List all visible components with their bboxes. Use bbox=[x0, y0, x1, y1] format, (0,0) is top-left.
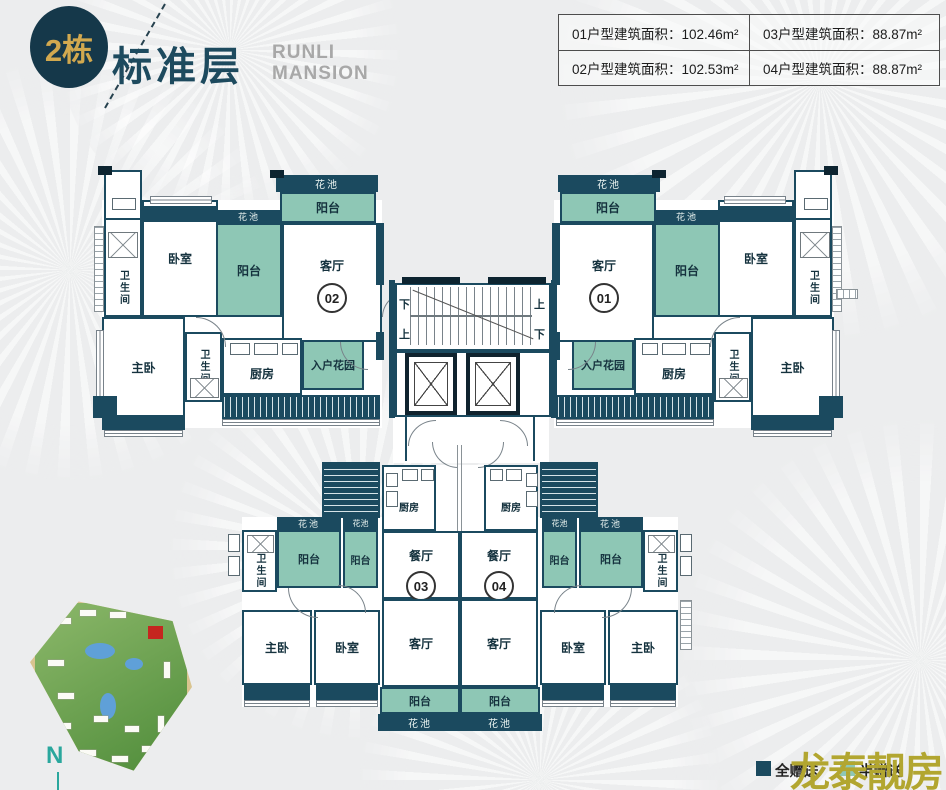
stair-label-up: 上 bbox=[534, 296, 545, 312]
bar-label: 花池 bbox=[488, 715, 512, 730]
site-building bbox=[125, 726, 139, 732]
u04-balcony-a: 阳台 bbox=[579, 530, 643, 588]
u04-kitchen: 厨房 bbox=[484, 465, 538, 531]
room-label: 阳台 bbox=[298, 551, 320, 567]
u04-balcony-bottom: 阳台 bbox=[460, 687, 540, 714]
wall-chunk bbox=[144, 206, 216, 222]
elevator-b bbox=[466, 353, 520, 415]
room-label: 卧室 bbox=[335, 639, 359, 656]
site-building bbox=[55, 723, 71, 729]
bar-label: 花池 bbox=[315, 176, 339, 191]
room-label: 卫生间 bbox=[252, 553, 267, 589]
bar-label: 花池 bbox=[408, 715, 432, 730]
u03-bathroom: 卫生间 bbox=[242, 530, 277, 592]
site-building bbox=[110, 612, 126, 618]
fixture-box bbox=[506, 469, 522, 481]
site-building bbox=[58, 693, 74, 699]
ledge bbox=[836, 289, 858, 299]
fixture-box bbox=[112, 198, 136, 210]
u04-dining: 餐厅 04 bbox=[460, 531, 538, 599]
u02-balcony-mid: 阳台 bbox=[216, 223, 282, 317]
u03-bedroom: 卧室 bbox=[314, 610, 380, 685]
wall-chunk bbox=[819, 396, 843, 418]
wall-chunk bbox=[376, 223, 384, 285]
room-label: 主卧 bbox=[631, 639, 655, 656]
window bbox=[832, 330, 840, 402]
wall-chunk bbox=[389, 280, 395, 418]
u01-living: 客厅 01 bbox=[554, 223, 654, 342]
u02-bathroom-1: 卫生间 bbox=[104, 218, 142, 317]
u04-duct-shaft bbox=[540, 462, 598, 518]
watermark: 龙泰靓房 bbox=[790, 740, 942, 790]
wall-chunk bbox=[376, 332, 384, 360]
ac-platform bbox=[680, 600, 692, 650]
area-cell-04: 04户型建筑面积：88.87m² bbox=[749, 50, 939, 85]
u03-master-bedroom: 主卧 bbox=[242, 610, 312, 685]
unit-number-label: 03 bbox=[414, 579, 428, 594]
hatch-box bbox=[190, 378, 219, 398]
u01-closet bbox=[794, 170, 832, 220]
u03-duct-shaft bbox=[322, 462, 380, 518]
room-label: 阳台 bbox=[351, 552, 371, 567]
u03-flowerbed-a: 花池 bbox=[277, 517, 341, 530]
room-label: 主卧 bbox=[265, 639, 289, 656]
room-label: 阳台 bbox=[237, 262, 261, 279]
floorplan-page: 2栋 标准层 RUNLI MANSION 01户型建筑面积：102.46m² 0… bbox=[0, 0, 946, 790]
bar-label: 花池 bbox=[600, 517, 622, 530]
fixture-box bbox=[386, 473, 398, 487]
unit-number-label: 01 bbox=[597, 291, 611, 306]
room-label: 卫生间 bbox=[116, 270, 131, 306]
hatch-box bbox=[108, 232, 138, 258]
window bbox=[556, 419, 714, 426]
wall-chunk bbox=[316, 684, 378, 700]
fixture-box bbox=[804, 198, 828, 210]
site-building bbox=[142, 746, 156, 752]
room-label: 阳台 bbox=[600, 551, 622, 567]
fan-pattern bbox=[680, 420, 946, 790]
fixture-box bbox=[490, 469, 503, 481]
area-cell-03: 03户型建筑面积：88.87m² bbox=[749, 15, 939, 50]
compass-n-label: N bbox=[46, 742, 63, 770]
window bbox=[316, 700, 378, 707]
fixture-box bbox=[282, 343, 298, 355]
site-building bbox=[55, 618, 71, 624]
site-building bbox=[80, 750, 96, 756]
u04-living: 客厅 bbox=[460, 599, 538, 687]
building-badge-label: 2栋 bbox=[45, 25, 93, 70]
u01-flowerbed-top: 花池 bbox=[558, 175, 660, 192]
fixture-box bbox=[526, 491, 538, 507]
u01-kitchen: 厨房 bbox=[634, 338, 714, 395]
wall-chunk bbox=[551, 280, 557, 418]
room-label: 阳台 bbox=[316, 199, 340, 216]
site-map-pond bbox=[85, 643, 115, 659]
u03-flowerbed-b: 花池 bbox=[343, 517, 378, 530]
room-label: 客厅 bbox=[409, 635, 433, 652]
unit-number-02: 02 bbox=[317, 283, 347, 313]
area-cell-02: 02户型建筑面积：102.53m² bbox=[559, 50, 749, 85]
u03-balcony-a: 阳台 bbox=[277, 530, 341, 588]
room-label: 阳台 bbox=[489, 693, 511, 709]
room-label: 主卧 bbox=[780, 359, 804, 376]
u02-balcony-top: 阳台 bbox=[280, 192, 376, 223]
hatch-box bbox=[247, 535, 274, 553]
u03-balcony-bottom: 阳台 bbox=[380, 687, 460, 714]
page-title: 标准层 bbox=[112, 34, 244, 92]
window bbox=[244, 700, 310, 707]
wall-chunk bbox=[610, 684, 676, 700]
site-building-highlighted bbox=[148, 626, 163, 639]
u01-grille bbox=[556, 395, 714, 419]
area-cell-01: 01户型建筑面积：102.46m² bbox=[559, 15, 749, 50]
fixture-box bbox=[642, 343, 658, 355]
hatch-box bbox=[719, 378, 748, 398]
subtitle-line2: MANSION bbox=[272, 63, 369, 84]
ac-platform bbox=[94, 226, 104, 312]
u02-kitchen: 厨房 bbox=[222, 338, 302, 395]
wall-chunk bbox=[488, 277, 546, 284]
room-label: 卧室 bbox=[744, 250, 768, 267]
window bbox=[222, 419, 380, 426]
bar-label: 花池 bbox=[676, 210, 698, 223]
hatch-box bbox=[800, 232, 830, 258]
room-label: 卧室 bbox=[168, 250, 192, 267]
site-building bbox=[80, 610, 96, 616]
window bbox=[610, 700, 676, 707]
unit-number-04: 04 bbox=[484, 571, 514, 601]
room-label: 厨房 bbox=[399, 499, 419, 514]
u04-flowerbed-b: 花池 bbox=[542, 517, 577, 530]
u04-bathroom: 卫生间 bbox=[643, 530, 678, 592]
page-subtitle: RUNLI MANSION bbox=[272, 42, 369, 84]
u01-balcony-top: 阳台 bbox=[560, 192, 656, 223]
stair-label-down: 下 bbox=[399, 296, 410, 312]
stair-landing-line bbox=[410, 315, 532, 317]
window bbox=[753, 430, 832, 437]
unit-number-label: 02 bbox=[325, 291, 339, 306]
fixture-box bbox=[254, 343, 278, 355]
fixture-box bbox=[690, 343, 710, 355]
fixture-box bbox=[526, 473, 538, 487]
room-label: 阳台 bbox=[550, 552, 570, 567]
window bbox=[104, 430, 183, 437]
fixture-box bbox=[662, 343, 686, 355]
wall-chunk bbox=[402, 277, 460, 284]
unit-number-03: 03 bbox=[406, 571, 436, 601]
compass-needle bbox=[57, 772, 59, 790]
elevator-a bbox=[405, 353, 457, 415]
room-label: 客厅 bbox=[487, 635, 511, 652]
window bbox=[724, 196, 786, 204]
wall-chunk bbox=[98, 166, 112, 175]
u04-master-bedroom: 主卧 bbox=[608, 610, 678, 685]
bar-label: 花池 bbox=[298, 517, 320, 530]
ac-platform bbox=[832, 226, 842, 312]
stair-label-down: 下 bbox=[534, 326, 545, 342]
wall-chunk bbox=[720, 206, 792, 222]
wall-chunk bbox=[652, 170, 666, 178]
site-map-pond bbox=[125, 658, 143, 670]
u02-closet bbox=[104, 170, 142, 220]
fixture-box bbox=[228, 556, 240, 576]
wall-chunk bbox=[270, 170, 284, 178]
fixture-box bbox=[680, 534, 692, 552]
room-label: 卧室 bbox=[561, 639, 585, 656]
building-badge: 2栋 bbox=[30, 6, 108, 88]
u03-balcony-b: 阳台 bbox=[343, 530, 378, 588]
elevator-cross bbox=[414, 362, 448, 406]
wall-chunk bbox=[552, 223, 560, 285]
legend-full-gift-swatch bbox=[756, 761, 771, 776]
u02-living: 客厅 02 bbox=[282, 223, 382, 342]
u01-bathroom-1: 卫生间 bbox=[794, 218, 832, 317]
room-label: 阳台 bbox=[409, 693, 431, 709]
room-label: 厨房 bbox=[501, 499, 521, 514]
wall-chunk bbox=[824, 166, 838, 175]
fixture-box bbox=[386, 491, 398, 507]
fixture-box bbox=[680, 556, 692, 576]
subtitle-line1: RUNLI bbox=[272, 42, 369, 63]
u02-grille bbox=[222, 395, 380, 419]
room-label: 餐厅 bbox=[409, 547, 433, 564]
unit-number-01: 01 bbox=[589, 283, 619, 313]
hatch-box bbox=[648, 535, 675, 553]
fixture-box bbox=[228, 534, 240, 552]
bar-label: 花池 bbox=[597, 176, 621, 191]
wall-chunk bbox=[542, 684, 604, 700]
bar-label: 花池 bbox=[238, 210, 260, 223]
fixture-box bbox=[402, 469, 418, 481]
room-label: 卫生间 bbox=[653, 553, 668, 589]
u03-kitchen: 厨房 bbox=[382, 465, 436, 531]
unit-number-label: 04 bbox=[492, 579, 506, 594]
u03-living: 客厅 bbox=[382, 599, 460, 687]
fixture-box bbox=[230, 343, 250, 355]
fixture-box bbox=[421, 469, 434, 481]
window bbox=[542, 700, 604, 707]
elevator-cross bbox=[475, 362, 511, 406]
wall-chunk bbox=[244, 684, 310, 700]
site-building bbox=[94, 716, 108, 722]
bar-label: 花池 bbox=[552, 518, 568, 529]
room-label: 主卧 bbox=[131, 359, 155, 376]
site-building bbox=[164, 662, 170, 678]
u04-flowerbed-bottom: 花池 bbox=[458, 714, 542, 731]
u03-flowerbed-bottom: 花池 bbox=[378, 714, 462, 731]
bar-label: 花池 bbox=[353, 518, 369, 529]
window bbox=[150, 196, 212, 204]
site-building bbox=[158, 716, 164, 732]
site-building bbox=[112, 756, 128, 762]
room-label: 客厅 bbox=[592, 257, 616, 274]
room-label: 厨房 bbox=[250, 365, 274, 382]
u01-balcony-mid: 阳台 bbox=[654, 223, 720, 317]
room-label: 厨房 bbox=[662, 365, 686, 382]
site-building bbox=[48, 660, 64, 666]
u01-flowerbed-small: 花池 bbox=[654, 210, 720, 223]
u04-balcony-b: 阳台 bbox=[542, 530, 577, 588]
wall-chunk bbox=[93, 396, 117, 418]
room-label: 餐厅 bbox=[487, 547, 511, 564]
u02-flowerbed-top: 花池 bbox=[276, 175, 378, 192]
room-label: 阳台 bbox=[596, 199, 620, 216]
window bbox=[96, 330, 104, 402]
u04-bedroom: 卧室 bbox=[540, 610, 606, 685]
unit-area-table: 01户型建筑面积：102.46m² 03户型建筑面积：88.87m² 02户型建… bbox=[558, 14, 940, 86]
u03-dining: 餐厅 03 bbox=[382, 531, 460, 599]
u04-flowerbed-a: 花池 bbox=[579, 517, 643, 530]
u02-flowerbed-small: 花池 bbox=[216, 210, 282, 223]
room-label: 客厅 bbox=[320, 257, 344, 274]
room-label: 阳台 bbox=[675, 262, 699, 279]
room-label: 卫生间 bbox=[806, 270, 821, 306]
stair-label-up: 上 bbox=[399, 326, 410, 342]
